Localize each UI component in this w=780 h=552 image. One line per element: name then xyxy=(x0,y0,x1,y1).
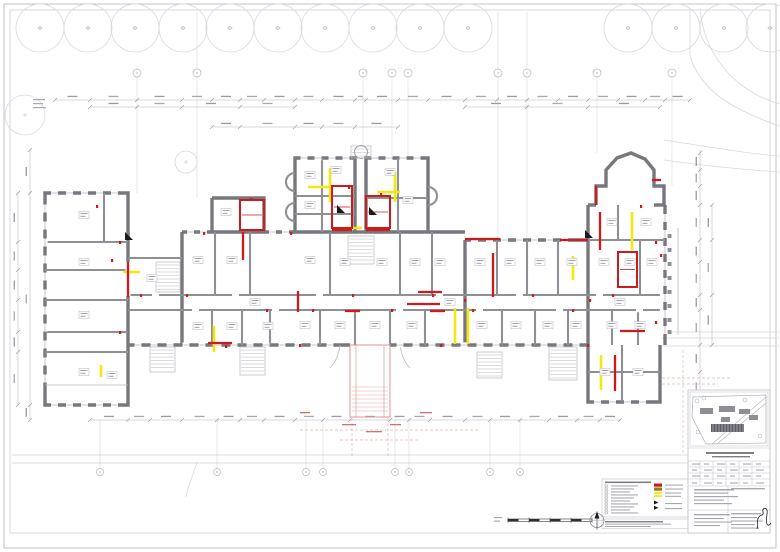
drawing-sheet xyxy=(0,0,780,552)
dimension-chains xyxy=(12,96,714,463)
scale-bar xyxy=(494,517,592,523)
legend-box xyxy=(602,479,688,529)
renovation-markup xyxy=(96,168,730,458)
sheet-frame xyxy=(4,4,776,548)
floor-plan-canvas xyxy=(0,0,780,552)
title-block xyxy=(688,390,771,533)
building-walls xyxy=(45,146,678,406)
